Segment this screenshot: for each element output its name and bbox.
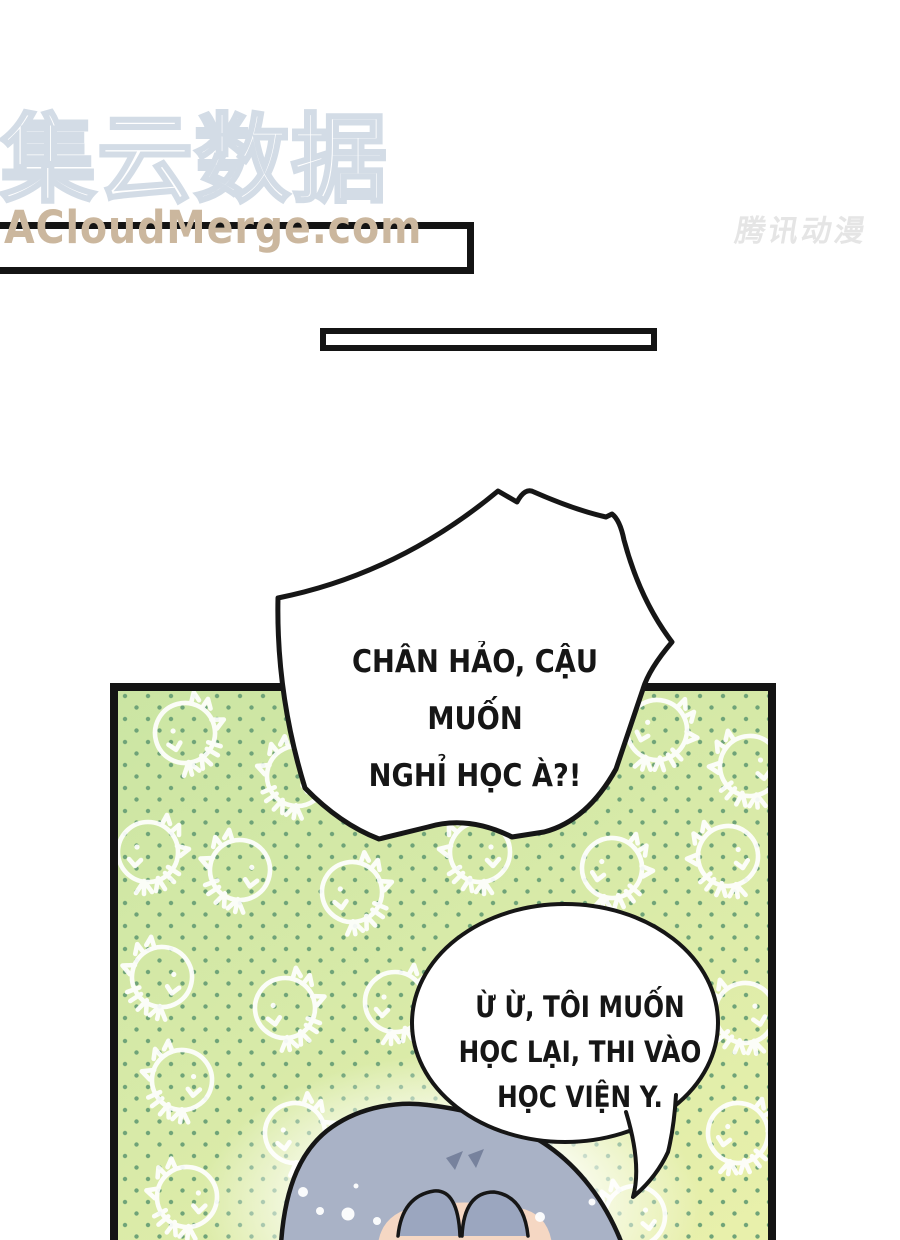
- chick-icon: [248, 963, 334, 1055]
- chick-icon: [682, 815, 763, 903]
- chick-icon: [113, 932, 199, 1024]
- chick-icon: [118, 815, 189, 894]
- reply-line-1: Ừ Ừ, TÔI MUỐN: [453, 985, 708, 1030]
- chick-icon: [706, 727, 776, 812]
- panel-bar-narrow: [320, 328, 657, 351]
- chick-icon: [576, 827, 657, 915]
- watermark-publisher: 腾讯动漫: [732, 206, 872, 250]
- chick-icon: [316, 848, 400, 938]
- chick-icon: [146, 687, 235, 782]
- reply-bubble-text: Ừ Ừ, TÔI MUỐN HỌC LẠI, THI VÀO HỌC VIỆN …: [453, 985, 708, 1120]
- reply-line-3: HỌC VIỆN Y.: [453, 1075, 708, 1120]
- chick-icon: [702, 1092, 776, 1180]
- watermark-logo-cjk: 集云数据: [0, 110, 388, 210]
- watermark-site-url: ACloudMerge.com: [4, 201, 422, 254]
- chick-icon: [439, 815, 510, 894]
- reply-line-2: HỌC LẠI, THI VÀO: [453, 1030, 708, 1075]
- chick-icon: [191, 825, 277, 917]
- shout-line-1: CHÂN HẢO, CẬU MUỐN: [325, 634, 624, 748]
- chick-icon: [249, 732, 333, 822]
- comic-page: { "watermarks": { "logo_cjk": "集云数据", "l…: [0, 0, 900, 1240]
- chick-icon: [617, 686, 706, 781]
- shout-line-2: NGHỈ HỌC À?!: [325, 748, 624, 805]
- shout-bubble-text: CHÂN HẢO, CẬU MUỐN NGHỈ HỌC À?!: [325, 634, 624, 805]
- chick-icon: [136, 1038, 217, 1126]
